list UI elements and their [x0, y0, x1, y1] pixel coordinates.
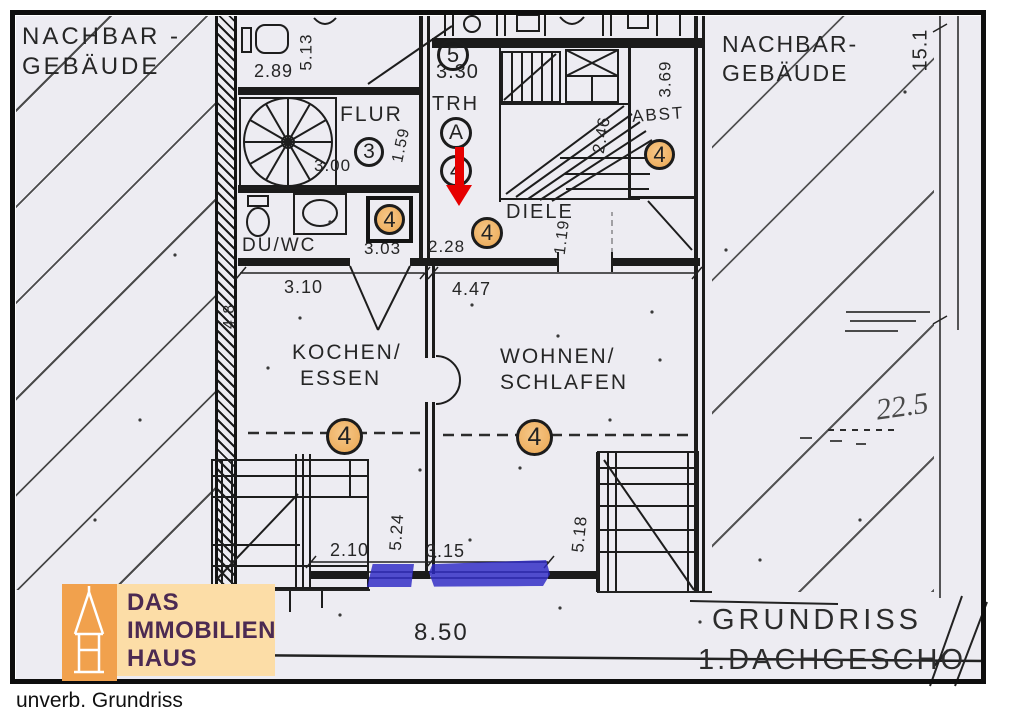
logo-line2: IMMOBILIEN [127, 617, 275, 645]
room-label-kochen-line1: KOCHEN/ [292, 340, 402, 366]
room-label-wohnen: WOHNEN/ SCHLAFEN [500, 344, 628, 397]
neighbor-left-line2: GEBÄUDE [22, 52, 181, 82]
marker-duwc-4: 4 [374, 204, 405, 235]
neighbor-left-line1: NACHBAR - [22, 22, 181, 52]
logo-line3: HAUS [127, 645, 275, 673]
red-arrow-annotation [445, 147, 473, 207]
red-arrow-head [446, 185, 472, 206]
church-tower-icon [62, 584, 117, 681]
neighbor-right-label: NACHBAR- GEBÄUDE [722, 30, 858, 88]
dim-kochen-width: 3.10 [284, 276, 323, 299]
room-label-flur: FLUR [340, 102, 403, 128]
dim-flur-width: 3.00 [314, 155, 351, 176]
dim-side-height: 4.8 [220, 295, 240, 329]
dim-trh-lower-width: 2.28 [428, 236, 465, 257]
floor-plan-scan: NACHBAR - GEBÄUDE NACHBAR- GEBÄUDE FLUR … [0, 0, 1024, 718]
plan-title-line2: 1.DACHGESCHO [698, 642, 966, 678]
room-label-abst: ABST [631, 102, 685, 127]
dim-house-width: 8.50 [414, 618, 469, 648]
dim-terrace-width: 2.10 [330, 539, 369, 562]
marker-diele-4: 4 [471, 217, 503, 249]
neighbor-left-label: NACHBAR - GEBÄUDE [22, 22, 181, 82]
logo-wordmark: DAS IMMOBILIEN HAUS [117, 584, 275, 676]
marker-staircase-A: A [440, 117, 472, 149]
marker-top-5: 5 [437, 39, 469, 71]
window-highlight-right [429, 560, 550, 588]
marker-abst-4: 4 [644, 139, 675, 170]
room-label-duwc: DU/WC [242, 234, 316, 258]
window-highlight-left [367, 564, 414, 587]
dim-window-width: 3.15 [426, 540, 465, 563]
room-label-wohnen-line2: SCHLAFEN [500, 370, 628, 396]
plan-caption: unverb. Grundriss [16, 688, 183, 714]
logo-icon-box [62, 584, 117, 681]
red-arrow-stem [455, 147, 464, 185]
neighbor-right-line2: GEBÄUDE [722, 59, 858, 88]
dim-wohnen-width: 4.47 [452, 278, 491, 301]
marker-wohnen-4: 4 [516, 419, 553, 456]
dim-bath-depth: 5.13 [295, 25, 316, 71]
dim-house-depth: 15.1 [909, 18, 934, 72]
room-label-trh: TRH [432, 92, 479, 117]
room-label-wohnen-line1: WOHNEN/ [500, 344, 628, 370]
dim-bath-width: 2.89 [254, 60, 293, 83]
dim-kochen-depth: 5.24 [385, 504, 409, 551]
marker-kochen-4: 4 [326, 418, 363, 455]
neighbor-right-line1: NACHBAR- [722, 30, 858, 59]
marker-flur-3: 3 [354, 137, 384, 167]
room-label-kochen: KOCHEN/ ESSEN [292, 340, 402, 393]
plan-title-line1: GRUNDRISS [712, 602, 922, 638]
room-label-kochen-line2: ESSEN [300, 366, 402, 392]
logo-line1: DAS [127, 589, 275, 617]
handwritten-area-note: 22.5 [874, 385, 931, 429]
dim-abst-depth: 3.69 [654, 56, 675, 98]
